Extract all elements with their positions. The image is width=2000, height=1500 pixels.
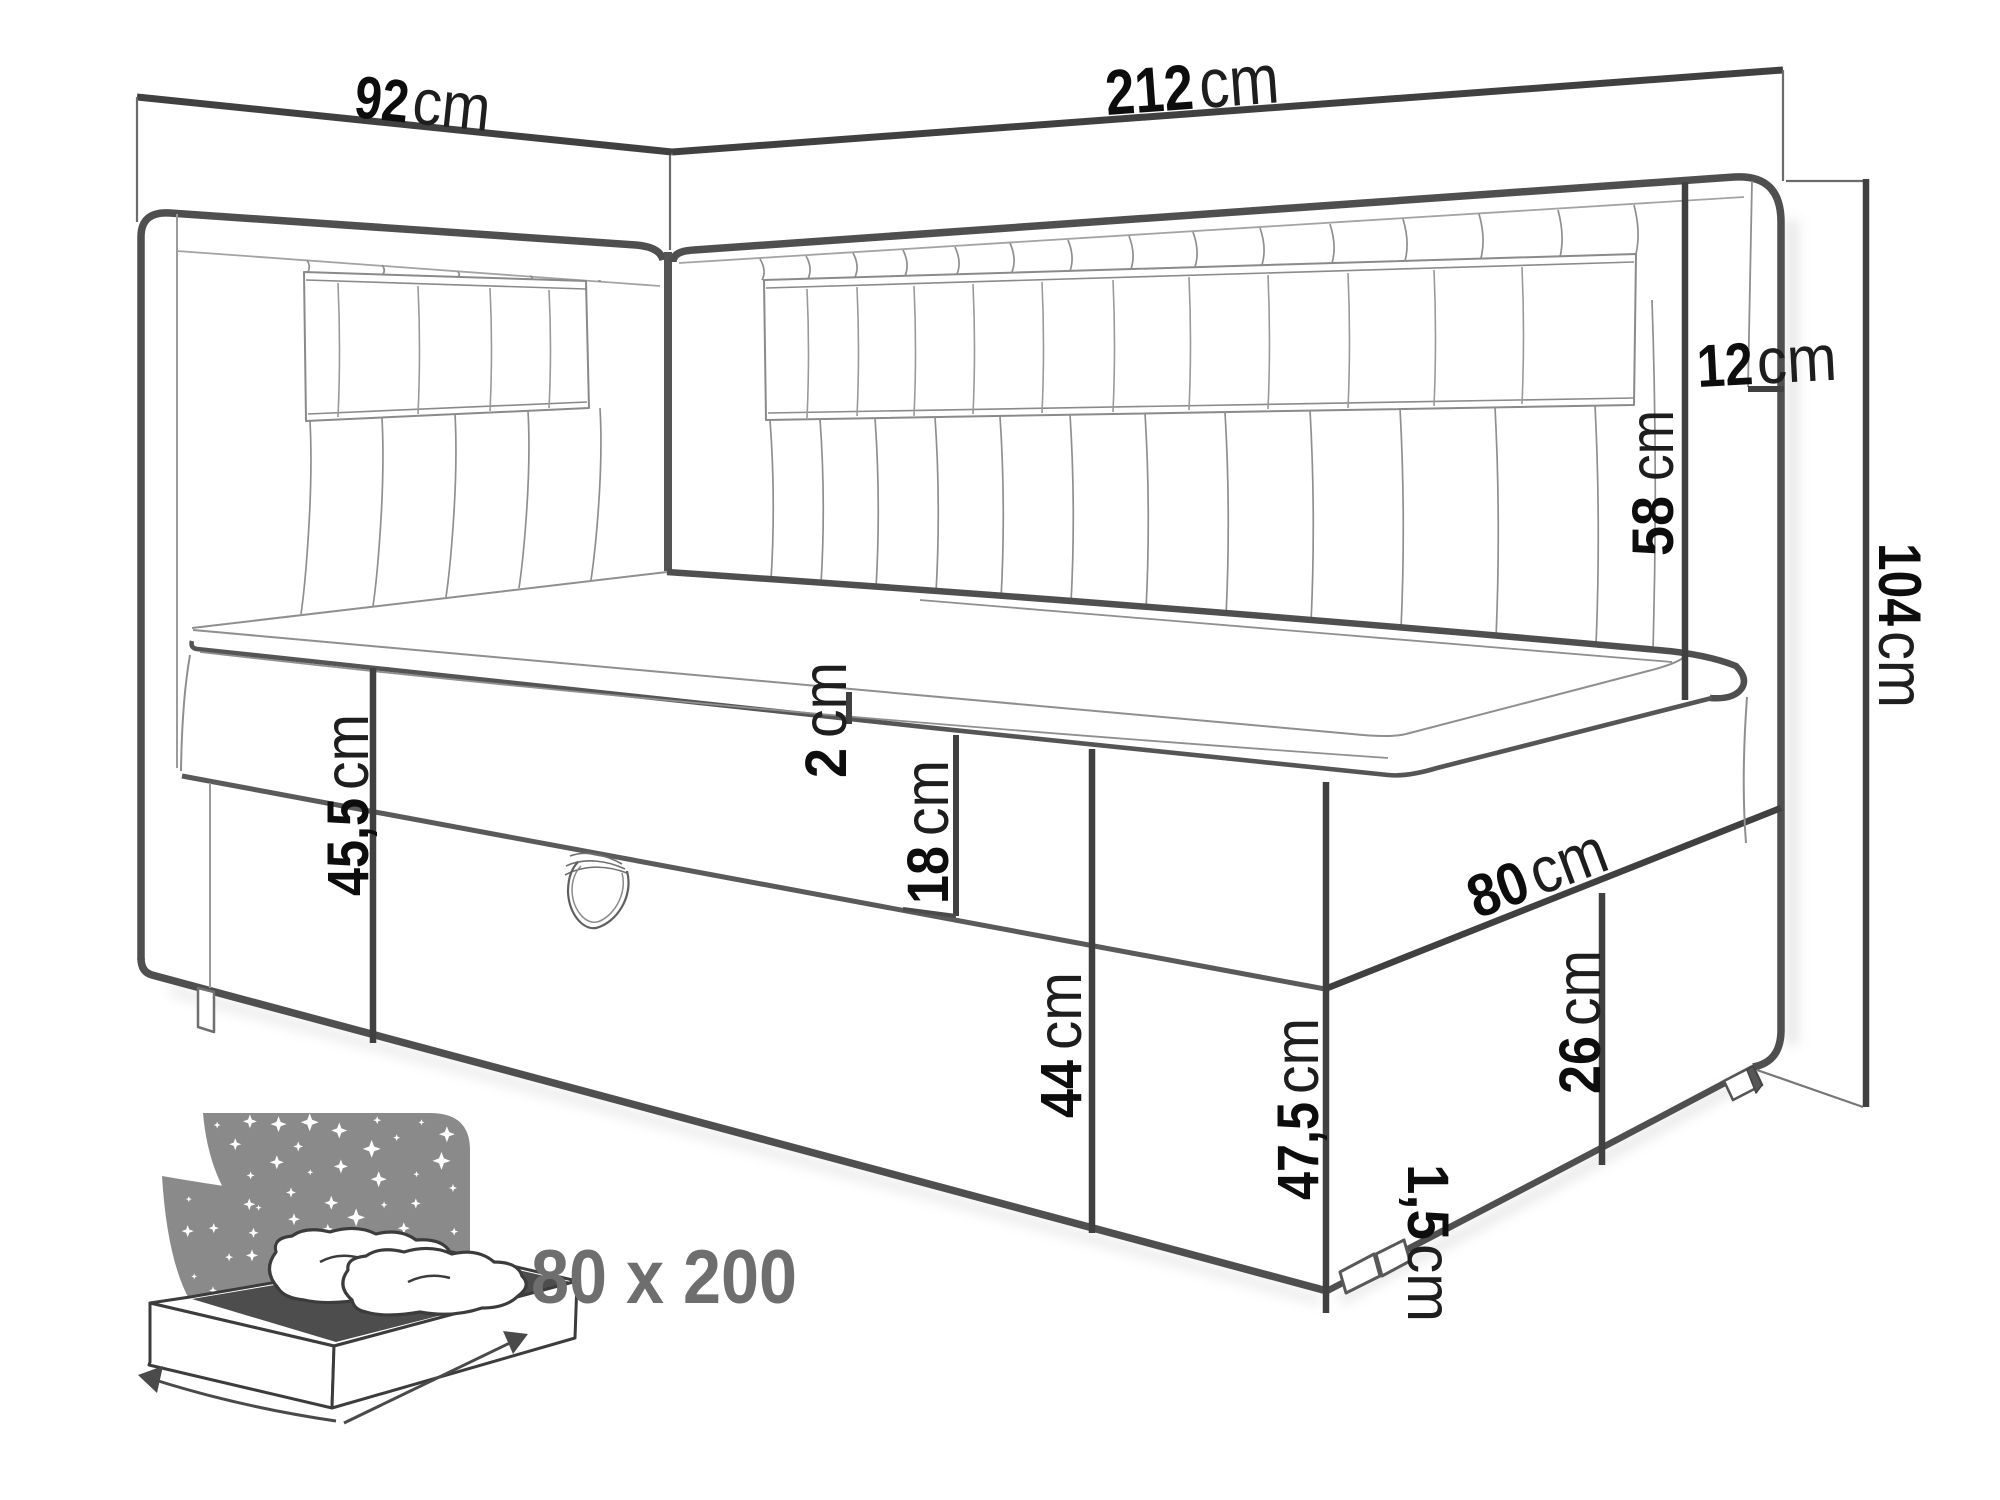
svg-text:18: 18 [896,846,961,904]
svg-text:12: 12 [1695,330,1754,400]
svg-text:58: 58 [1621,496,1686,556]
svg-text:cm: cm [1394,1244,1464,1322]
svg-text:45,5: 45,5 [316,798,381,896]
svg-text:cm: cm [1262,1018,1332,1094]
svg-text:80 x 200: 80 x 200 [531,1235,797,1320]
svg-text:1,5: 1,5 [1395,1164,1460,1240]
svg-text:cm: cm [1544,950,1614,1026]
svg-text:2: 2 [794,748,859,778]
svg-text:cm: cm [312,714,382,790]
svg-text:26: 26 [1548,1036,1613,1094]
svg-text:92: 92 [352,63,413,135]
svg-text:cm: cm [790,662,860,738]
svg-text:cm: cm [1196,39,1281,123]
svg-text:cm: cm [1617,410,1687,481]
svg-text:212: 212 [1103,51,1196,129]
svg-text:cm: cm [409,64,494,145]
svg-text:cm: cm [892,760,962,836]
svg-text:cm: cm [1865,631,1938,708]
svg-text:104: 104 [1866,543,1933,627]
svg-text:cm: cm [1755,321,1839,398]
svg-text:44: 44 [1029,1060,1094,1118]
svg-text:cm: cm [1025,972,1095,1050]
svg-text:47,5: 47,5 [1266,1102,1331,1200]
